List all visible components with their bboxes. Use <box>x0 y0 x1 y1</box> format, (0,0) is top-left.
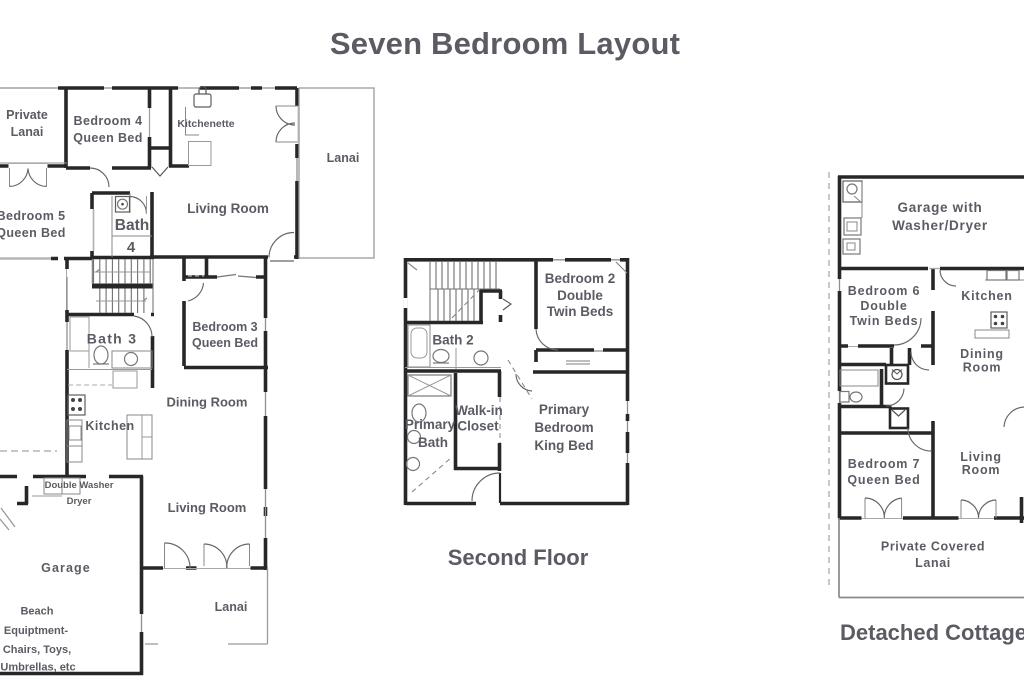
svg-text:Lanai: Lanai <box>215 600 248 614</box>
svg-text:Garage with: Garage with <box>898 200 983 215</box>
svg-text:Lanai: Lanai <box>327 151 360 165</box>
svg-text:Seven Bedroom Layout: Seven Bedroom Layout <box>330 26 680 61</box>
svg-text:Queen Bed: Queen Bed <box>847 473 920 487</box>
svg-text:Double Washer: Double Washer <box>45 480 114 491</box>
svg-text:Primary: Primary <box>539 402 590 417</box>
svg-text:Bath: Bath <box>418 435 448 450</box>
svg-text:King Bed: King Bed <box>534 438 593 453</box>
svg-text:Lanai: Lanai <box>11 125 44 139</box>
svg-text:Bath 3: Bath 3 <box>87 331 138 347</box>
svg-text:Private: Private <box>6 108 48 122</box>
svg-text:Double: Double <box>557 288 603 303</box>
svg-text:Bedroom 2: Bedroom 2 <box>545 271 616 286</box>
svg-text:Bedroom 3: Bedroom 3 <box>192 320 257 334</box>
svg-text:Living Room: Living Room <box>187 201 269 216</box>
svg-text:Room: Room <box>962 463 1001 477</box>
svg-text:Bedroom 5: Bedroom 5 <box>0 209 65 223</box>
svg-text:Equiptment-: Equiptment- <box>4 625 68 637</box>
svg-text:Bedroom: Bedroom <box>534 420 593 435</box>
svg-text:Chairs, Toys,: Chairs, Toys, <box>3 644 71 656</box>
svg-text:Washer/Dryer: Washer/Dryer <box>892 218 988 233</box>
svg-text:Double: Double <box>860 299 907 313</box>
svg-text:Dining Room: Dining Room <box>167 395 248 410</box>
svg-text:Living Room: Living Room <box>168 500 247 515</box>
svg-text:Dryer: Dryer <box>67 496 92 507</box>
svg-text:Twin Beds: Twin Beds <box>547 304 614 319</box>
svg-text:Closet: Closet <box>457 419 499 434</box>
svg-text:Queen Bed: Queen Bed <box>192 336 258 350</box>
svg-text:Kitchen: Kitchen <box>961 289 1012 303</box>
svg-text:Lanai: Lanai <box>915 556 951 570</box>
svg-text:Twin Beds: Twin Beds <box>850 314 919 328</box>
svg-text:Walk-in: Walk-in <box>455 403 503 418</box>
svg-text:4: 4 <box>127 239 136 256</box>
svg-text:Queen Bed: Queen Bed <box>73 131 143 145</box>
svg-text:Beach: Beach <box>20 606 53 618</box>
svg-text:Garage: Garage <box>41 561 91 575</box>
svg-text:Dining: Dining <box>960 347 1004 361</box>
svg-text:Bedroom 6: Bedroom 6 <box>848 284 921 298</box>
svg-text:Detached Cottage: Detached Cottage <box>840 620 1024 645</box>
svg-text:Bath 2: Bath 2 <box>432 333 473 348</box>
svg-text:Private Covered: Private Covered <box>881 540 985 554</box>
svg-text:Living: Living <box>960 450 1002 464</box>
svg-text:Kitchen: Kitchen <box>85 419 134 433</box>
svg-text:Bedroom 7: Bedroom 7 <box>848 457 921 471</box>
svg-text:Bedroom 4: Bedroom 4 <box>74 114 143 128</box>
svg-text:Second Floor: Second Floor <box>448 545 589 570</box>
svg-text:Room: Room <box>963 361 1002 375</box>
svg-text:Bath: Bath <box>115 217 149 234</box>
svg-text:Umbrellas, etc: Umbrellas, etc <box>0 662 75 674</box>
svg-text:Primary: Primary <box>405 417 456 432</box>
svg-text:Kitchenette: Kitchenette <box>177 118 234 130</box>
svg-text:Queen Bed: Queen Bed <box>0 226 66 240</box>
